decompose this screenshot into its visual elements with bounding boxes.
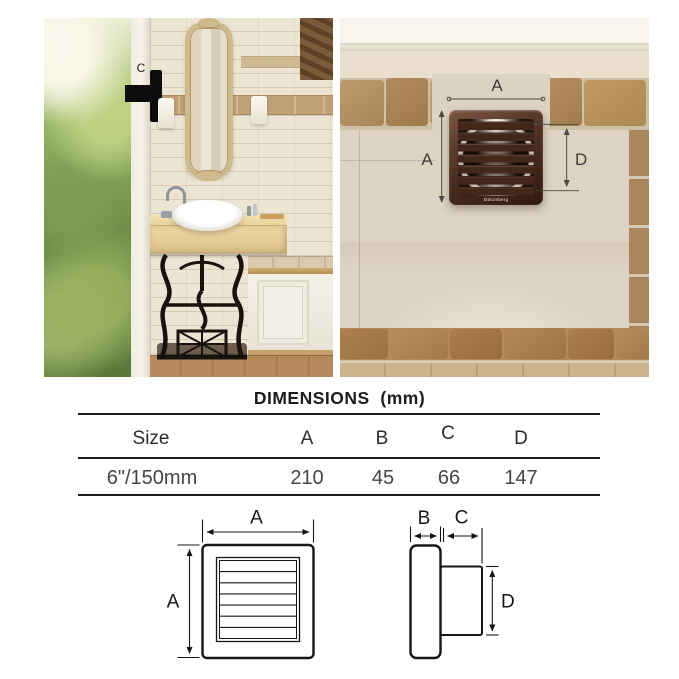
height-label: A (421, 150, 433, 169)
drawing-front-view: A A (167, 508, 314, 659)
column-header-size: Size (133, 428, 170, 450)
sewing-base-silhouette (152, 253, 252, 363)
column-header-b: B (376, 428, 389, 450)
column-header-c: C (441, 423, 455, 445)
mirror-crest-bottom (196, 170, 222, 181)
wood-shelf-corner (300, 18, 333, 80)
width-label: A (491, 76, 503, 95)
wall-sconce-left (158, 98, 174, 128)
photo-dimension-annotations: A A D (340, 18, 649, 377)
toiletry-bottle (253, 204, 257, 216)
front-width-label: A (250, 508, 263, 529)
front-height-label: A (167, 592, 180, 613)
tub-cabinet-door (257, 280, 309, 345)
drawing-side-view: B C D (411, 508, 515, 659)
side-faceplate (411, 546, 441, 659)
cell-d: 147 (504, 467, 537, 490)
wooden-tray (260, 214, 284, 219)
sky-patch (44, 18, 99, 116)
photo-bathroom-interior: C (44, 18, 333, 377)
cell-a: 210 (290, 467, 323, 490)
duct-depth-label: C (132, 61, 150, 75)
vintage-mirror (185, 23, 233, 177)
table-rule-bottom (78, 494, 600, 496)
product-dimension-image: C (0, 0, 679, 679)
technical-drawings: A A B C (0, 500, 679, 679)
toiletry-bottle (247, 206, 251, 216)
side-duct-diameter-label: D (501, 592, 515, 613)
dimensions-table-title: DIMENSIONS (mm) (0, 388, 679, 409)
faucet-handles (161, 211, 172, 218)
cell-size: 6"/150mm (107, 467, 197, 490)
side-duct-length-label: C (455, 508, 469, 529)
sewing-machine-base (152, 253, 252, 363)
column-header-a: A (301, 428, 314, 450)
side-duct (441, 567, 483, 636)
mirror-crest-top (198, 18, 220, 28)
sink-basin (172, 200, 243, 231)
cell-b: 45 (372, 467, 394, 490)
side-depth-label: B (418, 508, 431, 529)
diameter-label: D (575, 150, 587, 169)
fan-duct-silhouette (125, 85, 151, 102)
photo-fan-on-wall: atomberg A A D (340, 18, 649, 377)
table-rule-top (78, 413, 600, 415)
cell-c: 66 (438, 467, 460, 490)
tan-tile-row (151, 95, 333, 115)
front-louver-frame-inner (220, 561, 297, 639)
column-header-d: D (514, 428, 528, 450)
front-louver-frame-outer (217, 558, 300, 642)
front-louver-lines (220, 572, 296, 628)
table-rule-middle (78, 457, 600, 459)
wall-sconce-right (251, 96, 267, 124)
